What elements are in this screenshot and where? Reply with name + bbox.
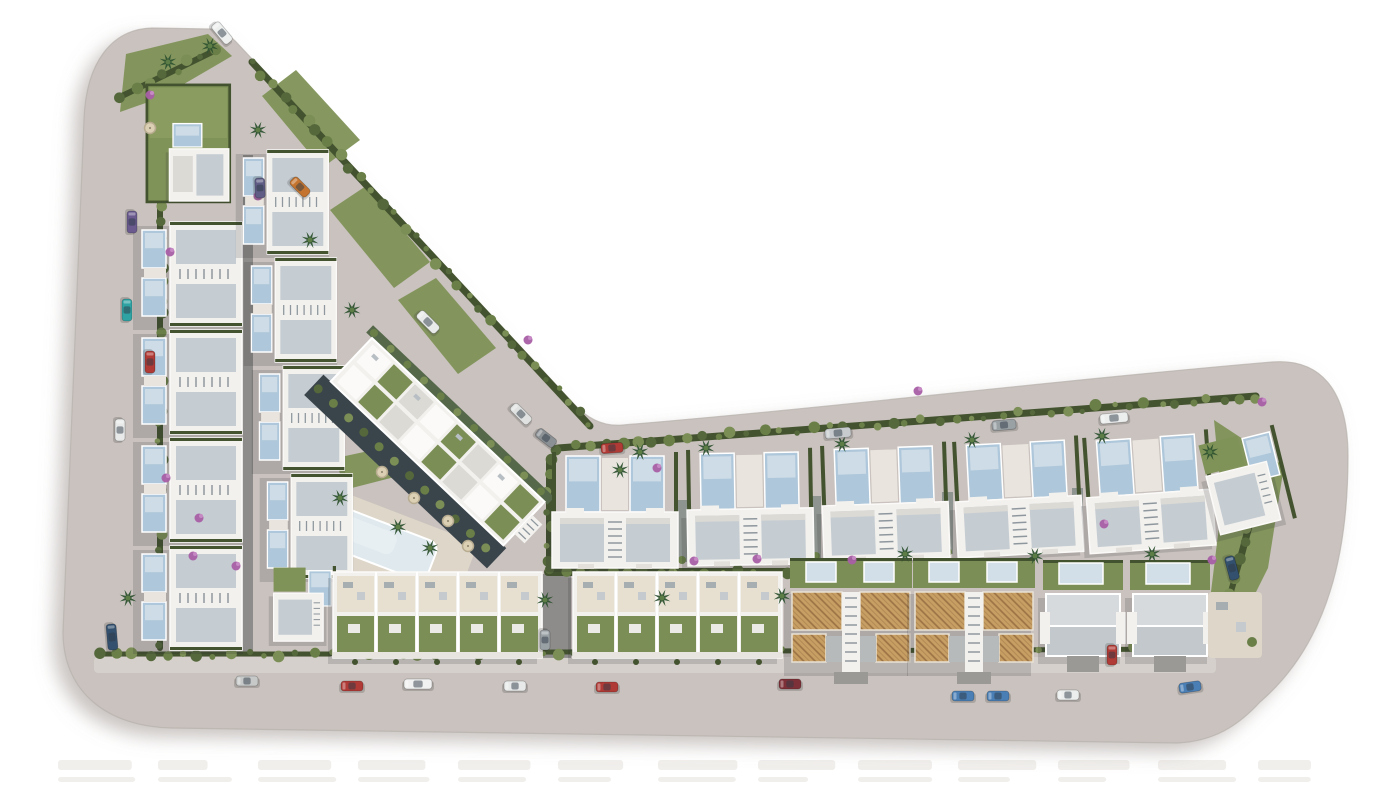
stair-rung: [1145, 538, 1159, 539]
terracotta-pair: [907, 558, 1035, 684]
terrace-furniture: [521, 592, 529, 600]
pool-highlight: [145, 497, 163, 512]
bush: [367, 187, 373, 193]
side-wing: [1116, 612, 1126, 644]
bush: [808, 421, 820, 433]
bush: [288, 105, 297, 114]
roof-plane: [173, 156, 193, 192]
bush: [531, 361, 539, 369]
bush: [1138, 397, 1149, 408]
bougainvillea-light: [657, 464, 661, 468]
car: [594, 682, 620, 694]
front-bush: [352, 659, 358, 665]
bush: [936, 417, 945, 426]
car-glass: [129, 218, 136, 225]
aerial-site-plan-stage: [0, 0, 1400, 787]
tiled-roof: [792, 592, 842, 630]
bush: [585, 422, 590, 427]
roof-plane: [176, 446, 236, 480]
terrace-furniture: [466, 582, 476, 588]
bush: [1000, 412, 1007, 419]
pool-highlight: [311, 573, 329, 587]
unit-garden: [659, 616, 696, 652]
side-hedge: [170, 323, 242, 326]
aerial-site-plan: [0, 0, 1400, 787]
car-glass: [542, 637, 549, 644]
bush: [889, 418, 900, 429]
bougainvillea-light: [166, 474, 170, 478]
car-glass: [1109, 652, 1116, 659]
bush: [776, 427, 782, 433]
palm-crown: [660, 596, 665, 601]
entry-step: [714, 561, 730, 566]
bush: [474, 305, 482, 313]
bush: [357, 172, 367, 182]
terrace-furniture: [638, 592, 646, 600]
car: [234, 676, 260, 688]
patio-paving: [1208, 592, 1262, 658]
bush: [430, 258, 442, 270]
watermark-blob: [958, 777, 1010, 782]
roof-notch: [701, 505, 719, 511]
pool-highlight: [1033, 443, 1062, 467]
bush: [1090, 399, 1102, 411]
bush: [901, 420, 908, 427]
side-hedge: [291, 474, 352, 477]
bougainvillea-light: [150, 91, 154, 95]
roof-lower: [1133, 626, 1207, 656]
bougainvillea-light: [170, 248, 174, 252]
side-hedge: [267, 150, 328, 153]
unit-garden: [618, 616, 655, 652]
white-semi: [1125, 560, 1213, 672]
pool-highlight: [767, 455, 795, 478]
pool-deck: [261, 412, 280, 422]
watermark-blob: [258, 760, 331, 770]
terrace-furniture: [343, 582, 353, 588]
bush: [423, 246, 428, 251]
side-hedge: [275, 359, 336, 362]
stair-rung: [1014, 543, 1028, 544]
bush: [273, 651, 285, 663]
tiled-roof: [876, 634, 910, 662]
car: [339, 681, 365, 693]
watermark-blob: [758, 760, 835, 770]
roof-plane: [176, 608, 236, 642]
terrace-wall: [700, 612, 737, 616]
garden-pool: [806, 562, 836, 582]
roof-plane: [176, 338, 236, 372]
car-highlight: [989, 693, 992, 700]
garden-paver: [629, 624, 641, 633]
unit-garden: [460, 616, 497, 652]
watermark-blob: [658, 777, 736, 782]
bush: [682, 433, 692, 443]
pool-highlight: [145, 557, 163, 572]
palm-crown: [1100, 434, 1105, 439]
garden-paver: [588, 624, 600, 633]
roof-terrace: [577, 576, 614, 612]
tiled-roof: [792, 634, 826, 662]
bush: [859, 422, 865, 428]
entry-step: [772, 560, 788, 565]
bush: [292, 650, 298, 656]
bush: [209, 654, 215, 660]
pool-highlight: [270, 533, 285, 548]
car: [985, 691, 1011, 703]
bush: [336, 149, 348, 161]
garden-pool: [929, 562, 959, 582]
car: [1105, 643, 1117, 667]
pool-deck: [602, 458, 628, 510]
garden-paver: [711, 624, 723, 633]
driveway: [1154, 656, 1186, 672]
car: [538, 628, 550, 652]
stair-rung: [1145, 531, 1159, 532]
terrace: [949, 636, 965, 662]
car: [502, 681, 528, 693]
roof-terrace: [460, 576, 497, 612]
bush: [543, 377, 548, 382]
bush: [916, 414, 925, 423]
car-highlight: [602, 445, 605, 452]
terrace-furniture: [507, 582, 517, 588]
bougainvillea-light: [694, 557, 698, 561]
car-glass: [1109, 414, 1119, 422]
watermark-band: [58, 760, 1311, 782]
front-wall: [573, 652, 782, 658]
bush: [585, 441, 595, 451]
stair-rung: [1012, 508, 1026, 509]
car-highlight: [1059, 692, 1062, 699]
unit-garden: [501, 616, 538, 652]
watermark-blob: [858, 760, 932, 770]
villa-pair: [133, 546, 243, 654]
terrace-furniture: [706, 582, 716, 588]
watermark-blob: [658, 760, 737, 770]
palm-crown: [840, 442, 845, 447]
tiled-roof: [915, 592, 965, 630]
bush: [391, 209, 397, 215]
front-bush: [633, 659, 639, 665]
pool-highlight: [703, 456, 731, 479]
car: [125, 209, 137, 235]
roof-plane: [761, 514, 806, 559]
parasol-pole: [381, 471, 383, 473]
villa-pair: [133, 330, 243, 438]
pool-highlight: [145, 605, 163, 620]
terrace-furniture: [720, 592, 728, 600]
watermark-blob: [1058, 760, 1129, 770]
bush: [281, 92, 291, 102]
pool-highlight: [1163, 437, 1192, 461]
bush: [981, 416, 986, 421]
unit-garden: [378, 616, 415, 652]
stair-strip: [965, 592, 983, 672]
roof-terrace: [618, 576, 655, 612]
car: [990, 419, 1019, 433]
watermark-blob: [1058, 777, 1106, 782]
palm-crown: [126, 596, 131, 601]
bougainvillea-light: [1262, 398, 1266, 402]
tiled-roof: [915, 634, 949, 662]
unit-garden: [577, 616, 614, 652]
roof-plane: [626, 518, 670, 562]
roof-terrace: [337, 576, 374, 612]
bush: [247, 649, 253, 655]
bush: [1048, 410, 1056, 418]
bush: [953, 415, 961, 423]
bush: [571, 440, 580, 449]
end-patio: [1208, 592, 1262, 658]
parasol-pole: [413, 497, 415, 499]
pool-deck: [253, 304, 272, 314]
pool-deck: [144, 592, 166, 602]
terracotta-pair: [784, 558, 912, 684]
front-bush: [674, 659, 680, 665]
bush: [969, 416, 974, 421]
car-highlight: [781, 681, 784, 688]
roof-plane: [176, 230, 236, 264]
bush: [132, 83, 144, 95]
bush: [794, 430, 799, 435]
entry-step: [578, 564, 594, 569]
roof-plane: [560, 518, 604, 562]
watermark-blob: [1158, 777, 1236, 782]
garden-pool: [864, 562, 894, 582]
garden-paver: [348, 624, 360, 633]
bush: [451, 280, 461, 290]
stair-strip: [842, 592, 860, 672]
car: [777, 679, 803, 691]
roof-ridge: [761, 514, 805, 521]
garden-paver: [752, 624, 764, 633]
pool-deck: [144, 484, 166, 494]
palm-crown: [396, 525, 401, 530]
roof-plane: [272, 212, 323, 246]
bush: [517, 351, 526, 360]
roof-upper: [1046, 594, 1120, 626]
watermark-blob: [958, 760, 1036, 770]
bush: [1013, 407, 1022, 416]
palm-crown: [903, 552, 908, 557]
bush: [250, 58, 256, 64]
bush: [255, 71, 266, 82]
terrace-furniture: [747, 582, 757, 588]
front-bush: [475, 659, 481, 665]
townhouse-block: [568, 572, 782, 665]
side-hedge: [170, 222, 242, 225]
terrace-furniture: [398, 592, 406, 600]
bush: [401, 224, 412, 235]
terrace-wall: [337, 612, 374, 616]
stair-rung: [1013, 529, 1027, 530]
villa-pair: [133, 438, 243, 546]
palm-crown: [970, 438, 975, 443]
side-wing: [1040, 612, 1050, 644]
car: [402, 679, 434, 691]
front-bush: [592, 659, 598, 665]
car: [120, 297, 132, 323]
bush: [724, 427, 736, 439]
garden-pool: [987, 562, 1017, 582]
bougainvillea-light: [236, 562, 240, 566]
terrace: [826, 636, 842, 662]
roof-upper: [1133, 594, 1207, 626]
terrace-wall: [460, 612, 497, 616]
bush: [94, 648, 105, 659]
parasol-pole: [447, 520, 449, 522]
roof-notch: [969, 496, 987, 503]
watermark-blob: [558, 760, 623, 770]
bush: [827, 422, 833, 428]
stair-rung: [1012, 522, 1026, 523]
bougainvillea-light: [199, 514, 203, 518]
pool-highlight: [262, 377, 277, 392]
front-wall: [333, 652, 542, 658]
bush: [1112, 402, 1117, 407]
roof-ridge: [626, 518, 670, 524]
roof-notch: [781, 504, 799, 510]
terrace-furniture: [439, 592, 447, 600]
roof-plane: [280, 266, 331, 300]
car-highlight: [108, 625, 115, 629]
car-glass: [124, 306, 131, 313]
pool-highlight: [145, 389, 163, 404]
car: [1055, 690, 1081, 702]
bush: [309, 124, 320, 135]
watermark-blob: [158, 760, 208, 770]
side-hedge: [283, 467, 344, 470]
terrace-wall: [577, 612, 614, 616]
pool-highlight: [837, 451, 866, 474]
terrace-furniture: [761, 592, 769, 600]
unit-garden: [337, 616, 374, 652]
car-glass: [786, 681, 793, 688]
bush: [646, 437, 657, 448]
garden-paver: [512, 624, 524, 633]
pool-highlight: [262, 425, 277, 440]
palm-crown: [1208, 450, 1213, 455]
patio-bush: [1247, 637, 1257, 647]
tiled-roof: [983, 592, 1033, 630]
terrace-wall: [419, 612, 456, 616]
bush: [760, 424, 771, 435]
villa-lawn: [274, 568, 306, 592]
roof-terrace: [700, 576, 737, 612]
driveway: [1067, 656, 1099, 672]
bush: [446, 268, 452, 274]
pool-deck: [736, 455, 763, 507]
watermark-blob: [458, 760, 530, 770]
pool-deck: [144, 376, 166, 386]
bougainvillea-light: [757, 555, 761, 559]
watermark-blob: [1258, 760, 1311, 770]
pool-highlight: [254, 269, 269, 284]
roof-plane: [176, 284, 236, 318]
watermark-blob: [358, 777, 429, 782]
villa-pair: [260, 474, 354, 582]
bush: [697, 431, 707, 441]
stair-rung: [1012, 515, 1026, 516]
driveway: [957, 672, 991, 684]
roof-plane: [176, 554, 236, 588]
car-glass: [117, 426, 124, 433]
garden-paver: [389, 624, 401, 633]
palm-crown: [1033, 554, 1038, 559]
pool-highlight: [246, 209, 261, 224]
pool-highlight: [145, 281, 163, 296]
car-glass: [833, 429, 842, 437]
patio-furniture: [1236, 622, 1246, 632]
roof-notch: [1049, 492, 1067, 499]
roof-plane: [296, 536, 347, 570]
parasol-pole: [149, 127, 151, 129]
garden-paver: [430, 624, 442, 633]
car-glass: [108, 632, 116, 641]
bush: [1201, 394, 1210, 403]
pool-deck: [269, 520, 288, 530]
side-hedge: [170, 647, 242, 650]
roof-ridge: [560, 518, 604, 524]
side-hedge: [283, 366, 344, 369]
terrace-furniture: [480, 592, 488, 600]
villa-pair: [244, 258, 338, 366]
entry-step: [1042, 549, 1058, 555]
bush: [157, 69, 167, 79]
side-hedge: [170, 539, 242, 542]
pool-deck: [1132, 439, 1162, 493]
bush: [343, 163, 353, 173]
watermark-blob: [58, 777, 135, 782]
bougainvillea-light: [1104, 520, 1108, 524]
terrace: [983, 636, 999, 662]
bush: [1234, 394, 1244, 404]
bush: [413, 232, 419, 238]
pool-highlight: [569, 459, 597, 481]
roof-plane: [695, 515, 740, 560]
front-bush: [756, 659, 762, 665]
townhouse-block: [328, 572, 542, 665]
garden-pool: [1059, 563, 1103, 584]
parasol-pole: [467, 545, 469, 547]
terrace-furniture: [624, 582, 634, 588]
car-highlight: [117, 421, 124, 424]
terrace: [860, 636, 876, 662]
stair-rung: [1013, 536, 1027, 537]
car-highlight: [406, 681, 409, 688]
watermark-blob: [1158, 760, 1226, 770]
bush: [1080, 409, 1085, 414]
car-glass: [511, 683, 518, 690]
unit-garden: [419, 616, 456, 652]
bougainvillea-light: [1212, 556, 1216, 560]
villa: [269, 566, 336, 646]
bush: [175, 69, 181, 75]
car-highlight: [1101, 415, 1105, 422]
bush: [716, 434, 722, 440]
palm-crown: [780, 594, 785, 599]
palm-crown: [704, 446, 709, 451]
terrace-furniture: [425, 582, 435, 588]
front-bush: [434, 659, 440, 665]
terrace-wall: [378, 612, 415, 616]
car-glass: [1000, 421, 1009, 429]
bush: [1170, 400, 1179, 409]
car-glass: [1186, 683, 1194, 691]
roof-plane: [288, 428, 339, 462]
side-hedge: [170, 438, 242, 441]
